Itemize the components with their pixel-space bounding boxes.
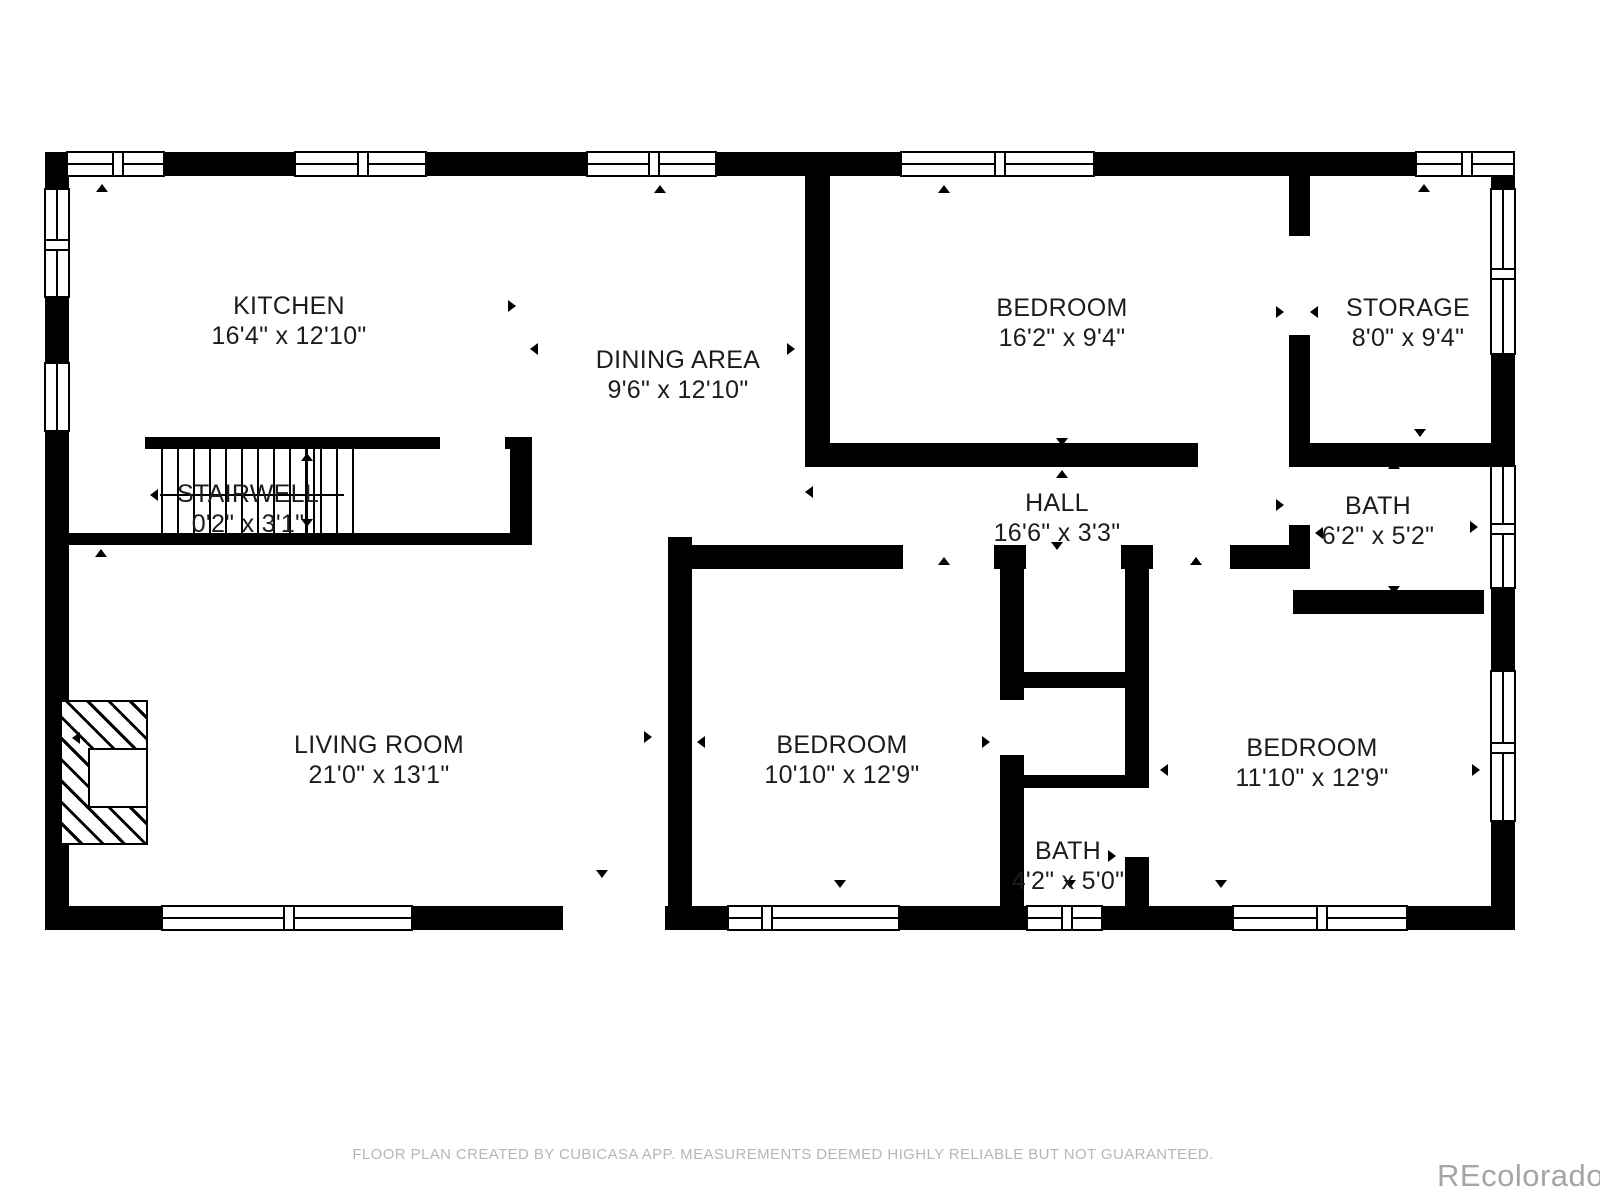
stairwell-door-gap: [440, 437, 505, 449]
stairwell-wall: [510, 437, 532, 545]
wall: [1289, 335, 1310, 467]
room-dimensions: 6'2" x 5'2": [1322, 521, 1435, 551]
room-dimensions: 21'0" x 13'1": [294, 760, 464, 790]
wall: [1289, 176, 1310, 236]
measure-arrow-up-icon: [95, 549, 107, 557]
measure-arrow-left-icon: [1160, 764, 1168, 776]
measure-arrow-right-icon: [1276, 306, 1284, 318]
room-dimensions: 9'6" x 12'10": [596, 375, 760, 405]
measure-arrow-up-icon: [1190, 557, 1202, 565]
window: [294, 151, 427, 177]
room-dimensions: 16'4" x 12'10": [211, 321, 366, 351]
room-name: HALL: [994, 488, 1121, 518]
measure-arrow-down-icon: [1215, 880, 1227, 888]
wall: [1310, 443, 1491, 467]
measure-arrow-left-icon: [72, 732, 80, 744]
measure-arrow-up-icon: [1056, 470, 1068, 478]
measure-arrow-left-icon: [697, 736, 705, 748]
floor-plan: KITCHEN 16'4" x 12'10" DINING AREA 9'6" …: [0, 0, 1600, 1200]
measure-arrow-up-icon: [654, 185, 666, 193]
measure-arrow-up-icon: [301, 453, 313, 461]
measure-arrow-up-icon: [938, 185, 950, 193]
wall: [668, 537, 692, 906]
wall: [45, 152, 1515, 176]
room-name: BEDROOM: [764, 730, 919, 760]
measure-arrow-up-icon: [1057, 780, 1069, 788]
window: [1026, 905, 1103, 931]
wall: [805, 176, 830, 467]
measure-arrow-up-icon: [938, 557, 950, 565]
room-dimensions: 16'6" x 3'3": [994, 518, 1121, 548]
window: [44, 188, 70, 298]
window: [1415, 151, 1515, 177]
wall: [1024, 775, 1125, 788]
measure-arrow-right-icon: [644, 731, 652, 743]
measure-arrow-left-icon: [1310, 306, 1318, 318]
room-dimensions: 0'2" x 3'1": [177, 509, 319, 539]
room-label-storage: STORAGE 8'0" x 9'4": [1346, 293, 1470, 353]
room-label-stairwell: STAIRWELL 0'2" x 3'1": [177, 479, 319, 539]
room-dimensions: 10'10" x 12'9": [764, 760, 919, 790]
room-label-bath-lower: BATH 4'2" x 5'0": [1012, 836, 1125, 896]
room-name: KITCHEN: [211, 291, 366, 321]
room-name: BATH: [1012, 836, 1125, 866]
measure-arrow-right-icon: [1276, 499, 1284, 511]
room-name: LIVING ROOM: [294, 730, 464, 760]
window: [1490, 188, 1516, 355]
window: [900, 151, 1095, 177]
measure-arrow-down-icon: [1414, 429, 1426, 437]
watermark: REcolorado: [1437, 1158, 1600, 1194]
wall: [692, 545, 903, 569]
room-label-hall: HALL 16'6" x 3'3": [994, 488, 1121, 548]
wall: [1289, 525, 1310, 569]
fireplace: [60, 700, 148, 845]
measure-arrow-down-icon: [1056, 438, 1068, 446]
room-label-bedroom-right: BEDROOM 11'10" x 12'9": [1235, 733, 1388, 793]
room-name: BEDROOM: [1235, 733, 1388, 763]
room-label-bedroom-middle: BEDROOM 10'10" x 12'9": [764, 730, 919, 790]
window: [1490, 465, 1516, 589]
measure-arrow-right-icon: [787, 343, 795, 355]
measure-arrow-up-icon: [96, 184, 108, 192]
measure-arrow-down-icon: [834, 880, 846, 888]
wall: [805, 443, 1198, 467]
measure-arrow-right-icon: [982, 736, 990, 748]
window: [1490, 670, 1516, 822]
footer-disclaimer: FLOOR PLAN CREATED BY CUBICASA APP. MEAS…: [352, 1146, 1213, 1163]
room-label-bedroom-top: BEDROOM 16'2" x 9'4": [996, 293, 1127, 353]
wall: [994, 545, 1026, 569]
room-name: BEDROOM: [996, 293, 1127, 323]
measure-arrow-right-icon: [508, 300, 516, 312]
room-label-living-room: LIVING ROOM 21'0" x 13'1": [294, 730, 464, 790]
wall: [1000, 569, 1024, 700]
room-dimensions: 4'2" x 5'0": [1012, 866, 1125, 896]
room-label-dining-area: DINING AREA 9'6" x 12'10": [596, 345, 760, 405]
window: [44, 362, 70, 432]
window: [66, 151, 165, 177]
measure-arrow-down-icon: [1388, 586, 1400, 594]
room-name: STAIRWELL: [177, 479, 319, 509]
measure-arrow-right-icon: [1472, 764, 1480, 776]
room-dimensions: 16'2" x 9'4": [996, 323, 1127, 353]
measure-arrow-right-icon: [1470, 521, 1478, 533]
measure-arrow-left-icon: [805, 486, 813, 498]
wall: [1125, 569, 1149, 788]
room-dimensions: 8'0" x 9'4": [1346, 323, 1470, 353]
wall: [69, 533, 145, 545]
measure-arrow-up-icon: [1418, 184, 1430, 192]
measure-arrow-down-icon: [596, 870, 608, 878]
room-label-bath-upper: BATH 6'2" x 5'2": [1322, 491, 1435, 551]
wall: [1024, 672, 1125, 688]
room-name: BATH: [1322, 491, 1435, 521]
room-name: DINING AREA: [596, 345, 760, 375]
window: [1232, 905, 1408, 931]
measure-arrow-left-icon: [530, 343, 538, 355]
stair-direction-arrow-head: [150, 489, 158, 501]
wall: [1230, 545, 1289, 569]
door-opening: [563, 905, 665, 931]
room-name: STORAGE: [1346, 293, 1470, 323]
room-dimensions: 11'10" x 12'9": [1235, 763, 1388, 793]
room-label-kitchen: KITCHEN 16'4" x 12'10": [211, 291, 366, 351]
window: [586, 151, 717, 177]
fireplace-firebox: [88, 748, 148, 808]
stair-treads: [320, 449, 354, 533]
window: [727, 905, 900, 931]
window: [161, 905, 413, 931]
wall: [1121, 545, 1153, 569]
measure-arrow-up-icon: [1388, 461, 1400, 469]
wall: [1125, 857, 1149, 906]
